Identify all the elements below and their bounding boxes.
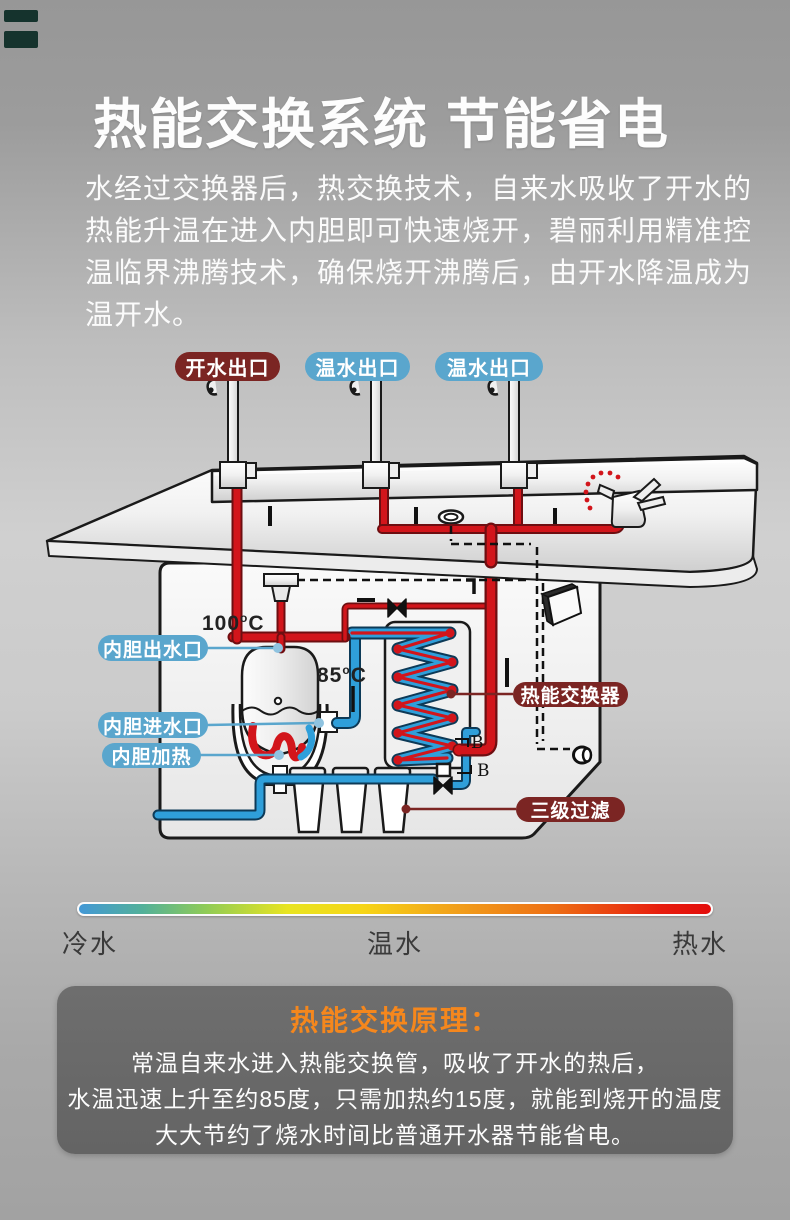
temp-preheated-value: 85 (317, 664, 342, 687)
part-label-heat-exchanger: 热能交换器 (513, 682, 628, 707)
part-label-tank-outlet: 内胆出水口 (98, 635, 208, 661)
infographic-page: 热能交换系统 节能省电 水经过交换器后，热交换技术，自来水吸收了开水的 热能升温… (0, 0, 790, 1220)
power-connector (574, 747, 592, 763)
section-mark-b1: B (471, 733, 484, 753)
legend-warm: 温水 (367, 924, 423, 961)
principle-line: 常温自来水进入热能交换管，吸收了开水的热后， (57, 1045, 733, 1081)
principle-title: 热能交换原理： (57, 999, 733, 1039)
temp-boiling-value: 100 (202, 612, 240, 635)
temperature-gradient-bar (77, 902, 713, 916)
temp-boiling: 100oC (202, 611, 265, 636)
section-mark-b2: B (477, 761, 490, 781)
principle-line: 大大节约了烧水时间比普通开水器节能省电。 (57, 1117, 733, 1153)
degree-symbol: o (342, 663, 350, 677)
temp-preheated: 85oC (317, 663, 367, 688)
counter-top (47, 456, 757, 587)
legend-cold: 冷水 (62, 924, 118, 961)
legend-hot: 热水 (672, 924, 728, 961)
outlet-label-warm-2: 温水出口 (435, 352, 543, 381)
temp-boiling-unit: C (248, 612, 264, 635)
part-label-tank-inlet: 内胆进水口 (98, 712, 208, 738)
principle-line: 水温迅速上升至约85度，只需加热约15度，就能到烧开的温度 (57, 1081, 733, 1117)
outlet-label-warm-1: 温水出口 (305, 352, 410, 381)
part-label-filter: 三级过滤 (516, 797, 625, 822)
principle-box: 热能交换原理： 常温自来水进入热能交换管，吸收了开水的热后， 水温迅速上升至约8… (57, 986, 733, 1154)
outlet-label-boiling: 开水出口 (175, 352, 280, 381)
part-label-tank-heater: 内胆加热 (102, 743, 201, 768)
temp-preheated-unit: C (351, 664, 367, 687)
